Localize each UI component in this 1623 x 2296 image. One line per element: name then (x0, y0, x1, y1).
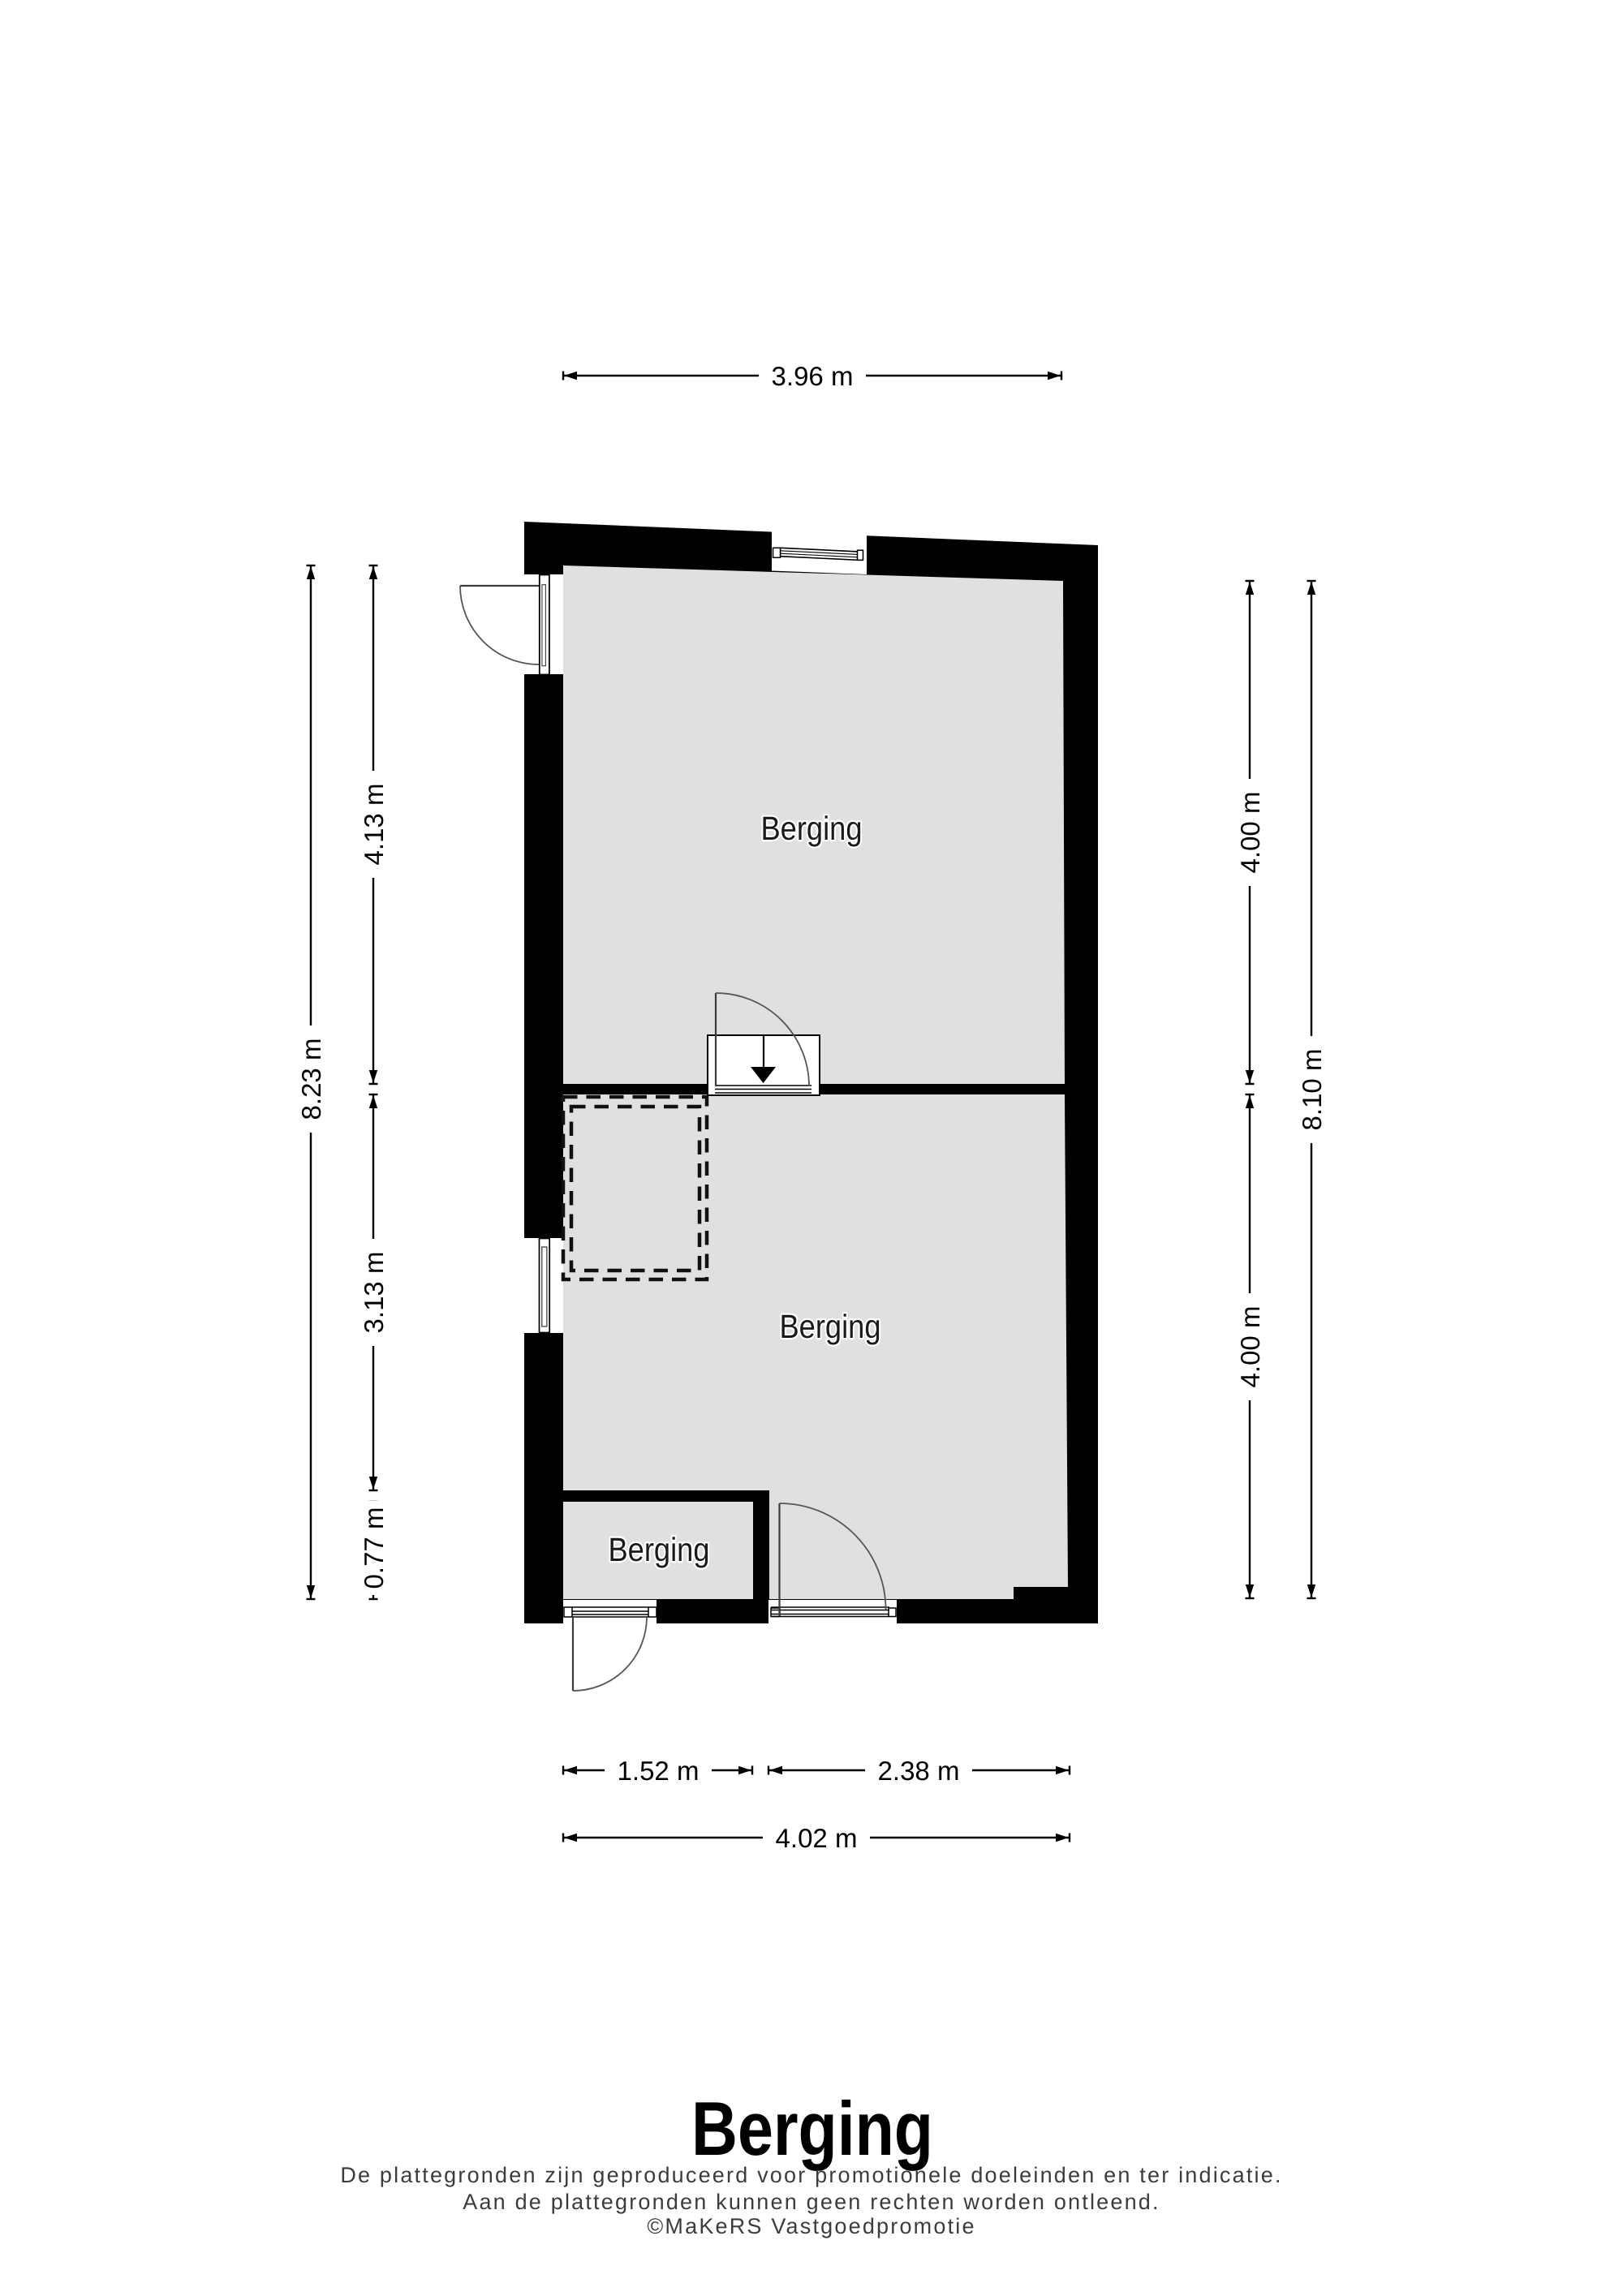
svg-text:Berging: Berging (609, 1531, 710, 1568)
svg-text:De plattegronden zijn geproduc: De plattegronden zijn geproduceerd voor … (340, 2163, 1282, 2187)
svg-text:8.10 m: 8.10 m (1297, 1049, 1327, 1131)
svg-text:Aan de plattegronden kunnen ge: Aan de plattegronden kunnen geen rechten… (463, 2190, 1160, 2214)
svg-text:1.52 m: 1.52 m (618, 1756, 700, 1786)
svg-text:3.96 m: 3.96 m (772, 361, 854, 391)
svg-text:0.77 m: 0.77 m (359, 1507, 389, 1589)
svg-text:4.13 m: 4.13 m (359, 784, 389, 866)
svg-text:Berging: Berging (780, 1308, 881, 1345)
svg-text:Berging: Berging (691, 2086, 933, 2171)
svg-text:©MaKeRS Vastgoedpromotie: ©MaKeRS Vastgoedpromotie (647, 2214, 975, 2238)
svg-text:Berging: Berging (761, 810, 863, 847)
svg-text:4.00 m: 4.00 m (1235, 792, 1265, 874)
svg-text:4.02 m: 4.02 m (776, 1823, 858, 1853)
svg-text:8.23 m: 8.23 m (296, 1038, 326, 1120)
svg-text:3.13 m: 3.13 m (359, 1252, 389, 1334)
svg-text:2.38 m: 2.38 m (878, 1756, 960, 1786)
svg-text:4.00 m: 4.00 m (1235, 1306, 1265, 1388)
